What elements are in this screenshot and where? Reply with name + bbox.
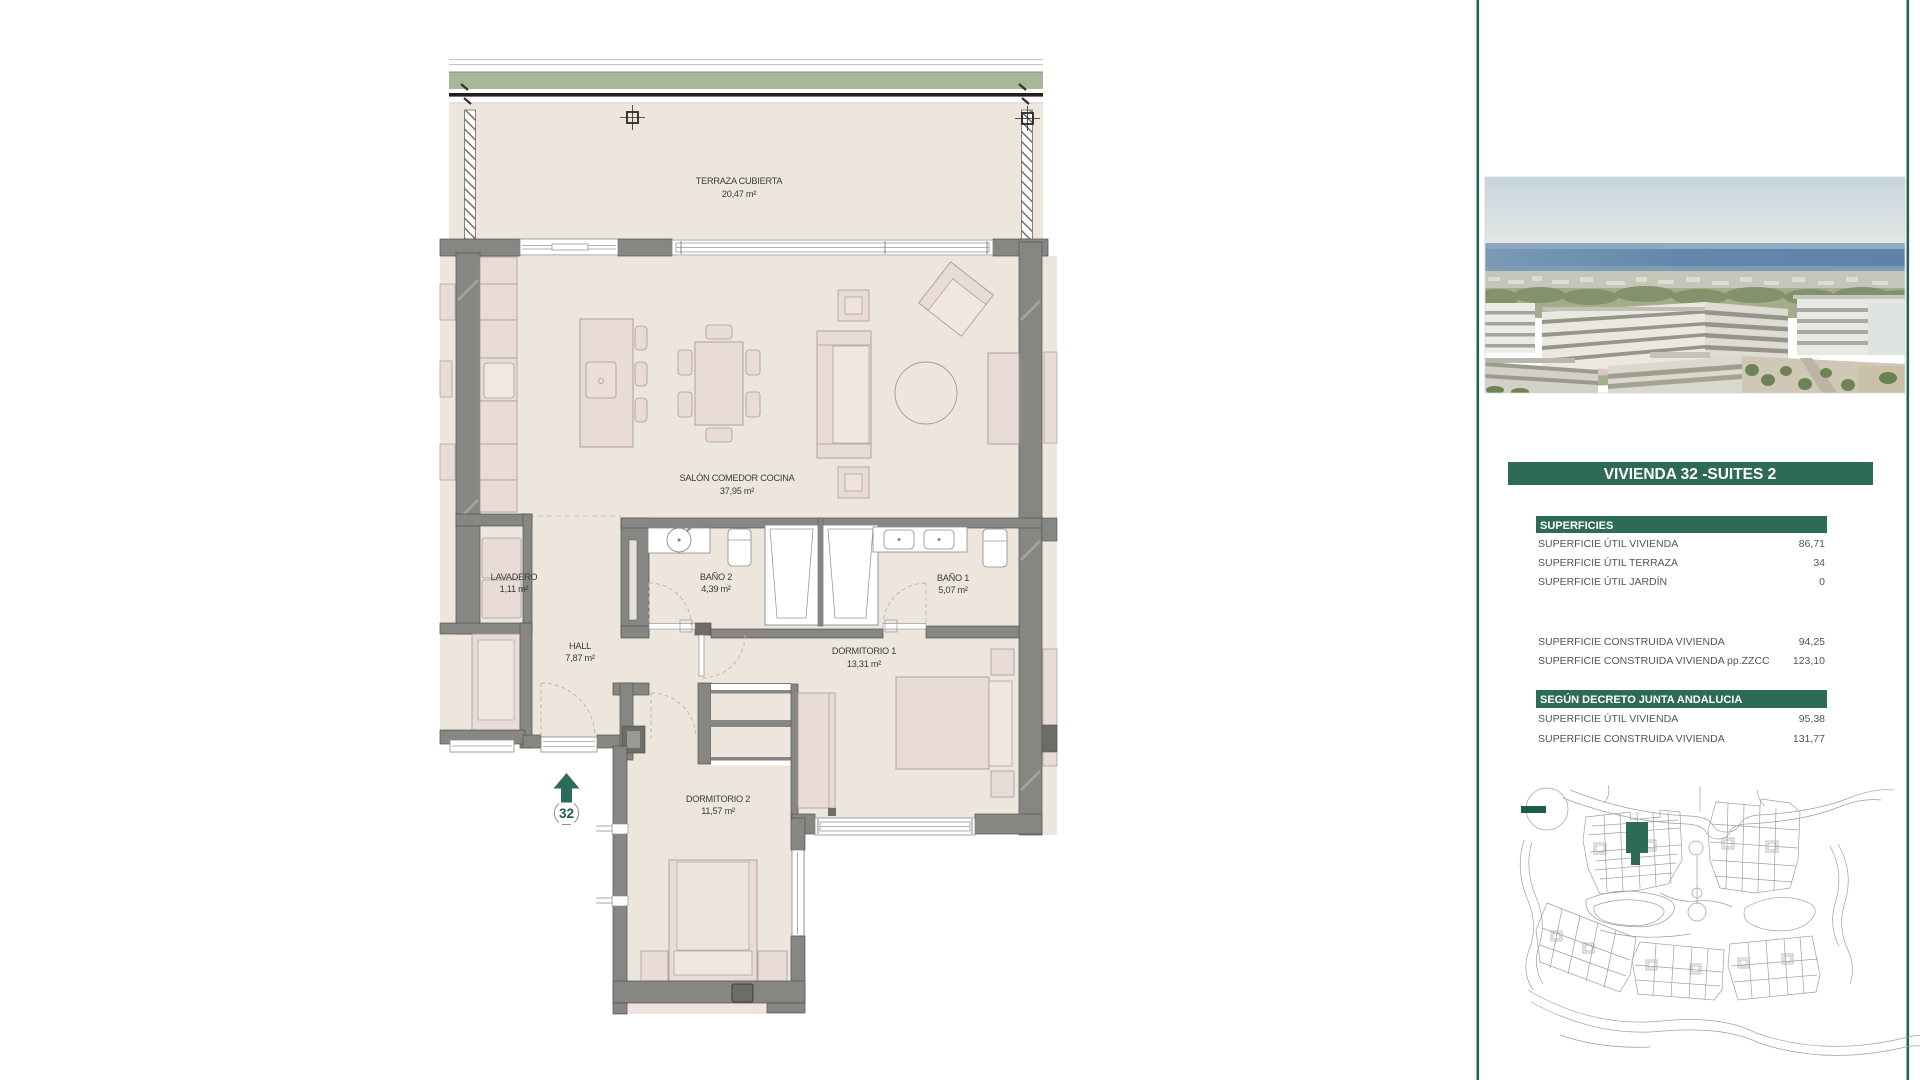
- svg-text:SUPERFICIE CONSTRUIDA VIVIENDA: SUPERFICIE CONSTRUIDA VIVIENDA: [1538, 733, 1725, 745]
- svg-text:1,11 m²: 1,11 m²: [500, 584, 529, 594]
- svg-text:SUPERFICIE CONSTRUIDA VIVIENDA: SUPERFICIE CONSTRUIDA VIVIENDA pp.ZZCC: [1538, 655, 1770, 667]
- svg-text:11,57 m²: 11,57 m²: [701, 806, 735, 816]
- svg-text:SUPERFICIE ÚTIL TERRAZA: SUPERFICIE ÚTIL TERRAZA: [1538, 556, 1678, 569]
- svg-text:86,71: 86,71: [1799, 538, 1825, 550]
- svg-text:LAVADERO: LAVADERO: [491, 572, 538, 582]
- svg-text:13,31 m²: 13,31 m²: [847, 659, 881, 669]
- svg-text:0: 0: [1819, 576, 1825, 588]
- svg-text:VIVIENDA 32 -SUITES 2: VIVIENDA 32 -SUITES 2: [1604, 466, 1777, 483]
- svg-text:SUPERFICIE ÚTIL VIVIENDA: SUPERFICIE ÚTIL VIVIENDA: [1538, 537, 1678, 550]
- svg-text:SUPERFICIE CONSTRUIDA VIVIENDA: SUPERFICIE CONSTRUIDA VIVIENDA: [1538, 636, 1725, 648]
- svg-text:131,77: 131,77: [1793, 733, 1825, 745]
- svg-text:DORMITORIO 2: DORMITORIO 2: [686, 794, 750, 804]
- svg-text:DORMITORIO 1: DORMITORIO 1: [832, 646, 896, 656]
- svg-text:SUPERFICIE ÚTIL VIVIENDA: SUPERFICIE ÚTIL VIVIENDA: [1538, 712, 1678, 725]
- svg-text:SUPERFICIE ÚTIL JARDÍN: SUPERFICIE ÚTIL JARDÍN: [1538, 575, 1667, 588]
- svg-text:TERRAZA CUBIERTA: TERRAZA CUBIERTA: [696, 176, 784, 186]
- svg-text:32: 32: [559, 806, 574, 821]
- svg-text:5,07 m²: 5,07 m²: [938, 585, 968, 595]
- svg-text:4,39 m²: 4,39 m²: [701, 584, 731, 594]
- svg-text:37,95 m²: 37,95 m²: [720, 486, 754, 496]
- svg-text:20,47 m²: 20,47 m²: [722, 189, 756, 199]
- svg-text:94,25: 94,25: [1799, 636, 1825, 648]
- svg-text:95,38: 95,38: [1799, 713, 1825, 725]
- svg-text:BAÑO 2: BAÑO 2: [700, 572, 732, 582]
- svg-text:BAÑO 1: BAÑO 1: [937, 573, 969, 583]
- svg-text:34: 34: [1813, 557, 1825, 569]
- svg-text:SALÓN COMEDOR COCINA: SALÓN COMEDOR COCINA: [680, 473, 796, 483]
- svg-text:123,10: 123,10: [1793, 655, 1825, 667]
- svg-text:HALL: HALL: [569, 641, 591, 651]
- svg-text:7,87 m²: 7,87 m²: [565, 653, 595, 663]
- svg-text:SEGÚN DECRETO JUNTA ANDALUCIA: SEGÚN DECRETO JUNTA ANDALUCIA: [1540, 693, 1742, 706]
- svg-text:SUPERFICIES: SUPERFICIES: [1540, 520, 1613, 532]
